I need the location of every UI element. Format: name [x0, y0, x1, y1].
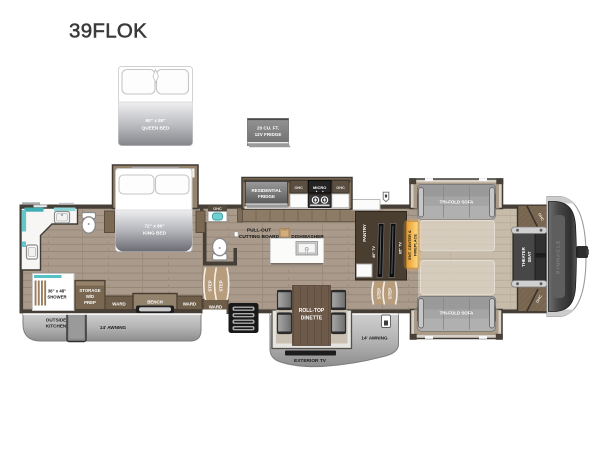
svg-text:OHC: OHC: [336, 186, 345, 190]
svg-text:THEATER: THEATER: [521, 247, 526, 266]
svg-text:KING BED: KING BED: [143, 231, 167, 236]
svg-text:OUTSIDE: OUTSIDE: [46, 318, 66, 323]
svg-text:14' AWNING: 14' AWNING: [100, 325, 127, 330]
svg-text:65" TV: 65" TV: [399, 242, 403, 254]
svg-text:STEP: STEP: [208, 280, 213, 291]
svg-text:TRI-FOLD SOFA: TRI-FOLD SOFA: [440, 200, 474, 205]
svg-text:QUEEN BED: QUEEN BED: [142, 126, 170, 131]
svg-text:PREP: PREP: [84, 300, 96, 305]
svg-text:PANTRY: PANTRY: [362, 224, 367, 242]
svg-text:TRI-FOLD SOFA: TRI-FOLD SOFA: [440, 311, 474, 316]
svg-text:RESIDENTIAL: RESIDENTIAL: [251, 188, 281, 193]
svg-text:WARD: WARD: [209, 305, 222, 310]
svg-text:DISHWASHER: DISHWASHER: [291, 234, 324, 240]
svg-text:PINNACLE: PINNACLE: [556, 239, 562, 273]
svg-text:SEAT: SEAT: [527, 251, 532, 262]
svg-text:FIREPLACE: FIREPLACE: [412, 234, 417, 256]
svg-text:STEP: STEP: [377, 288, 382, 299]
svg-text:20 CU. FT.: 20 CU. FT.: [257, 126, 279, 131]
svg-text:BENCH: BENCH: [147, 300, 163, 305]
svg-text:ENT. CENTER &: ENT. CENTER &: [407, 230, 412, 260]
svg-text:SHOWER: SHOWER: [47, 295, 67, 300]
svg-text:36" x 48": 36" x 48": [48, 289, 66, 294]
svg-text:OHC: OHC: [213, 207, 222, 211]
svg-text:WARD: WARD: [183, 302, 196, 307]
svg-text:W/D: W/D: [86, 294, 94, 299]
svg-text:EXTERIOR TV: EXTERIOR TV: [294, 358, 327, 364]
svg-text:CUTTING BOARD: CUTTING BOARD: [239, 234, 280, 240]
svg-text:WARD: WARD: [112, 302, 125, 307]
svg-text:DINETTE: DINETTE: [301, 316, 323, 322]
svg-text:MICRO: MICRO: [313, 185, 326, 190]
svg-text:72" x 80": 72" x 80": [144, 224, 164, 229]
svg-text:FRIDGE: FRIDGE: [258, 194, 275, 199]
svg-text:12V FRIDGE: 12V FRIDGE: [255, 132, 282, 137]
svg-text:OHC: OHC: [294, 186, 303, 190]
svg-text:ROLL-TOP: ROLL-TOP: [299, 308, 325, 314]
svg-text:39FLOK: 39FLOK: [69, 20, 147, 43]
svg-text:14' AWNING: 14' AWNING: [361, 336, 388, 341]
svg-text:STEP: STEP: [219, 280, 224, 291]
svg-text:STORAGE: STORAGE: [79, 288, 100, 293]
svg-text:60" x 80": 60" x 80": [145, 118, 165, 123]
svg-text:40" TV: 40" TV: [372, 246, 376, 258]
svg-text:KITCHEN: KITCHEN: [46, 324, 67, 329]
svg-text:PULL-OUT: PULL-OUT: [247, 228, 271, 234]
svg-text:STEP: STEP: [388, 288, 393, 299]
